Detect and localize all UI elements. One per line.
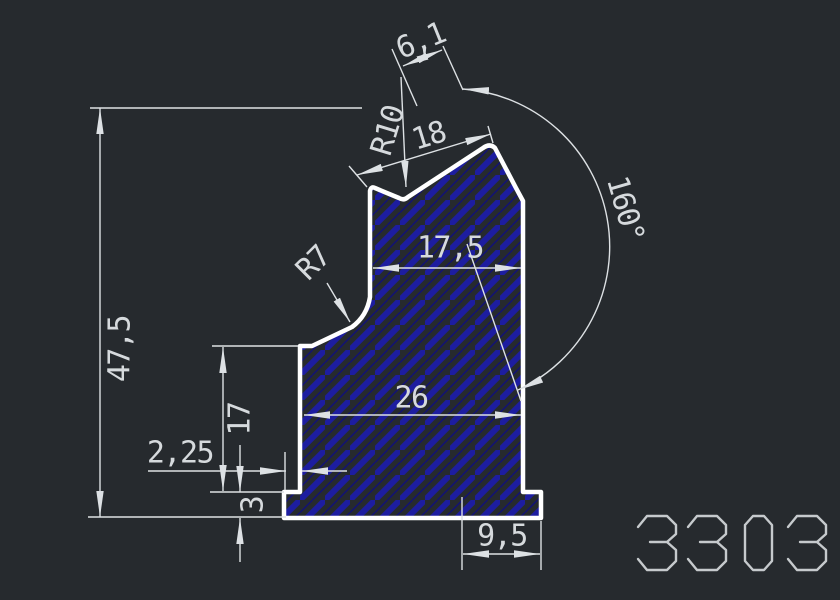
- dimension-text: 17: [223, 402, 258, 435]
- leader-line: [327, 283, 350, 322]
- profile-outline[interactable]: [284, 146, 541, 519]
- extension-line: [349, 166, 367, 187]
- part-number-glyph: [788, 516, 826, 542]
- dimension-text: 47,5: [103, 316, 138, 382]
- part-number-glyph: [688, 542, 726, 570]
- dimension-text: 9,5: [477, 519, 527, 554]
- part-number-glyph: [638, 542, 676, 570]
- dimension-text: 160°: [599, 172, 651, 245]
- part-number-glyph: [688, 516, 726, 542]
- dimension-text: 3: [236, 497, 271, 514]
- dimension-text: 6,1: [391, 15, 451, 66]
- dimension-text: 18: [408, 114, 450, 157]
- part-number-glyph: [638, 516, 676, 542]
- part-number-text[interactable]: [638, 516, 826, 570]
- dimension-text: 26: [394, 381, 428, 416]
- dimension-text: R7: [289, 239, 337, 287]
- part-number-glyph: [788, 542, 826, 570]
- extension-line: [443, 46, 463, 90]
- dimension-radius-left[interactable]: R7: [289, 239, 350, 322]
- dimension-text: 2,25: [147, 436, 213, 471]
- cad-drawing: 47,5 17 3 2,25 26 17,5 9,5: [0, 0, 840, 600]
- part-number-glyph: [745, 516, 772, 570]
- cad-viewport: 47,5 17 3 2,25 26 17,5 9,5: [0, 0, 840, 600]
- dimension-base-thickness[interactable]: 3: [236, 445, 271, 562]
